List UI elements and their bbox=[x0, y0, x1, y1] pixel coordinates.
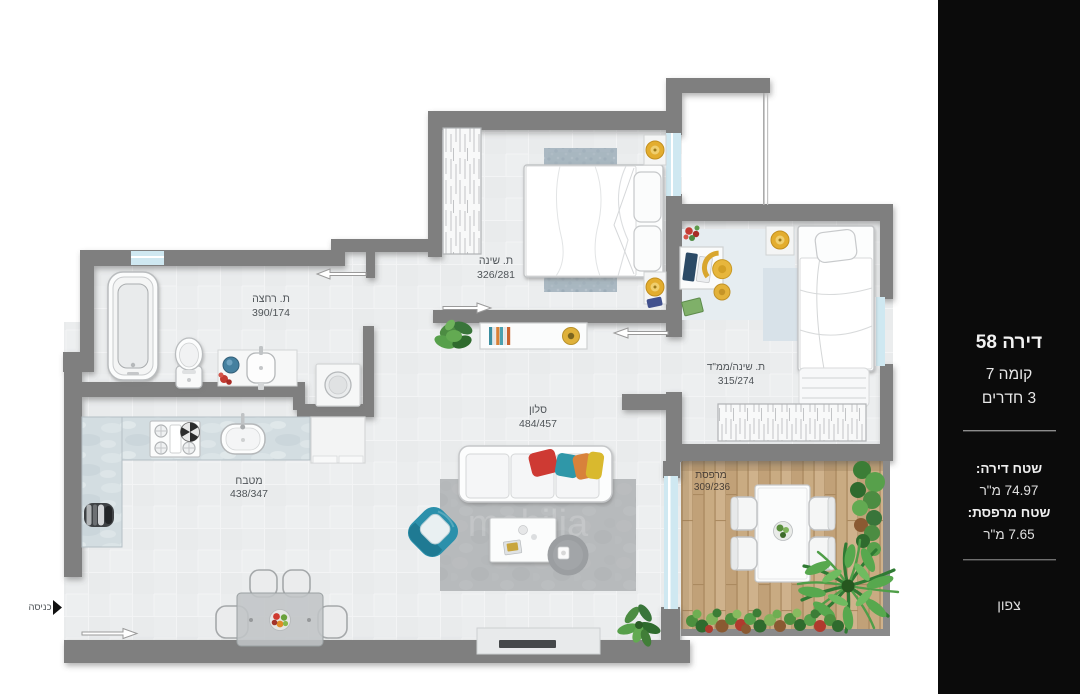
svg-text:מרפסת: מרפסת bbox=[695, 470, 727, 481]
svg-text:ת. רחצה: ת. רחצה bbox=[252, 293, 290, 305]
svg-text:390/174: 390/174 bbox=[252, 307, 290, 319]
svg-text:צפון: צפון bbox=[997, 597, 1021, 613]
svg-text:7.65 מ"ר: 7.65 מ"ר bbox=[983, 527, 1034, 542]
svg-text:74.97 מ"ר: 74.97 מ"ר bbox=[980, 483, 1039, 498]
svg-text:דירה 58: דירה 58 bbox=[976, 332, 1042, 353]
svg-text:סלון: סלון bbox=[529, 404, 547, 416]
svg-text:קומה 7: קומה 7 bbox=[986, 366, 1033, 383]
svg-text:שטח מרפסת:: שטח מרפסת: bbox=[968, 505, 1051, 520]
svg-text:ת. שינה/ממ"ד: ת. שינה/ממ"ד bbox=[707, 362, 765, 373]
svg-text:326/281: 326/281 bbox=[477, 269, 515, 281]
svg-text:כניסה: כניסה bbox=[28, 602, 51, 613]
svg-text:315/274: 315/274 bbox=[718, 376, 755, 387]
svg-text:438/347: 438/347 bbox=[230, 488, 268, 500]
svg-text:מטבח: מטבח bbox=[235, 475, 262, 487]
svg-text:ת. שינה: ת. שינה bbox=[479, 255, 513, 267]
svg-text:3 חדרים: 3 חדרים bbox=[982, 390, 1036, 407]
svg-text:484/457: 484/457 bbox=[519, 418, 557, 430]
svg-text:309/236: 309/236 bbox=[694, 482, 731, 493]
svg-text:שטח דירה:: שטח דירה: bbox=[976, 461, 1042, 476]
